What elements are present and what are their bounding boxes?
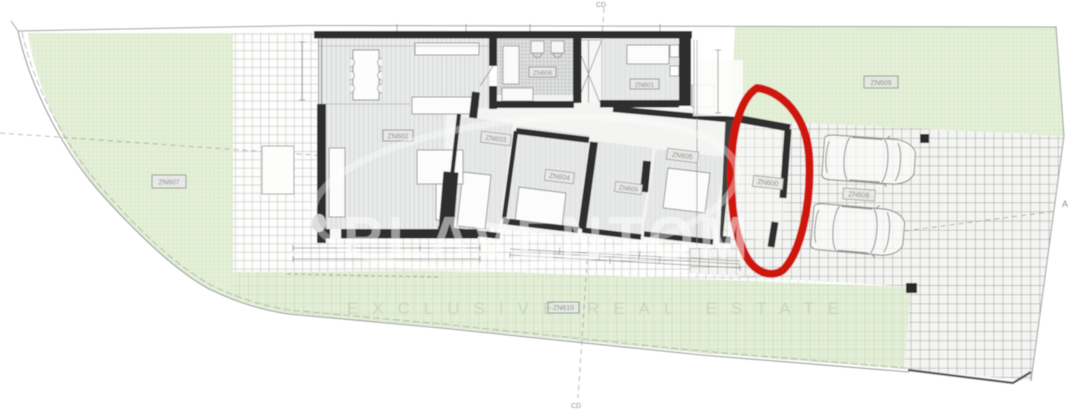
svg-text:CD: CD xyxy=(596,2,606,9)
svg-text:ZN609: ZN609 xyxy=(870,80,891,87)
svg-text:PLAVENTOM: PLAVENTOM xyxy=(343,205,753,271)
svg-text:ZN607: ZN607 xyxy=(158,180,179,187)
svg-text:EXCLUSIVE REAL ESTATE: EXCLUSIVE REAL ESTATE xyxy=(347,299,853,318)
svg-text:ZN608: ZN608 xyxy=(848,191,870,199)
svg-text:A: A xyxy=(1062,199,1068,209)
svg-text:CD: CD xyxy=(571,403,581,410)
svg-text:ZN606: ZN606 xyxy=(533,70,553,77)
svg-text:ZN601: ZN601 xyxy=(635,82,655,89)
svg-text:ZN602: ZN602 xyxy=(387,134,408,141)
